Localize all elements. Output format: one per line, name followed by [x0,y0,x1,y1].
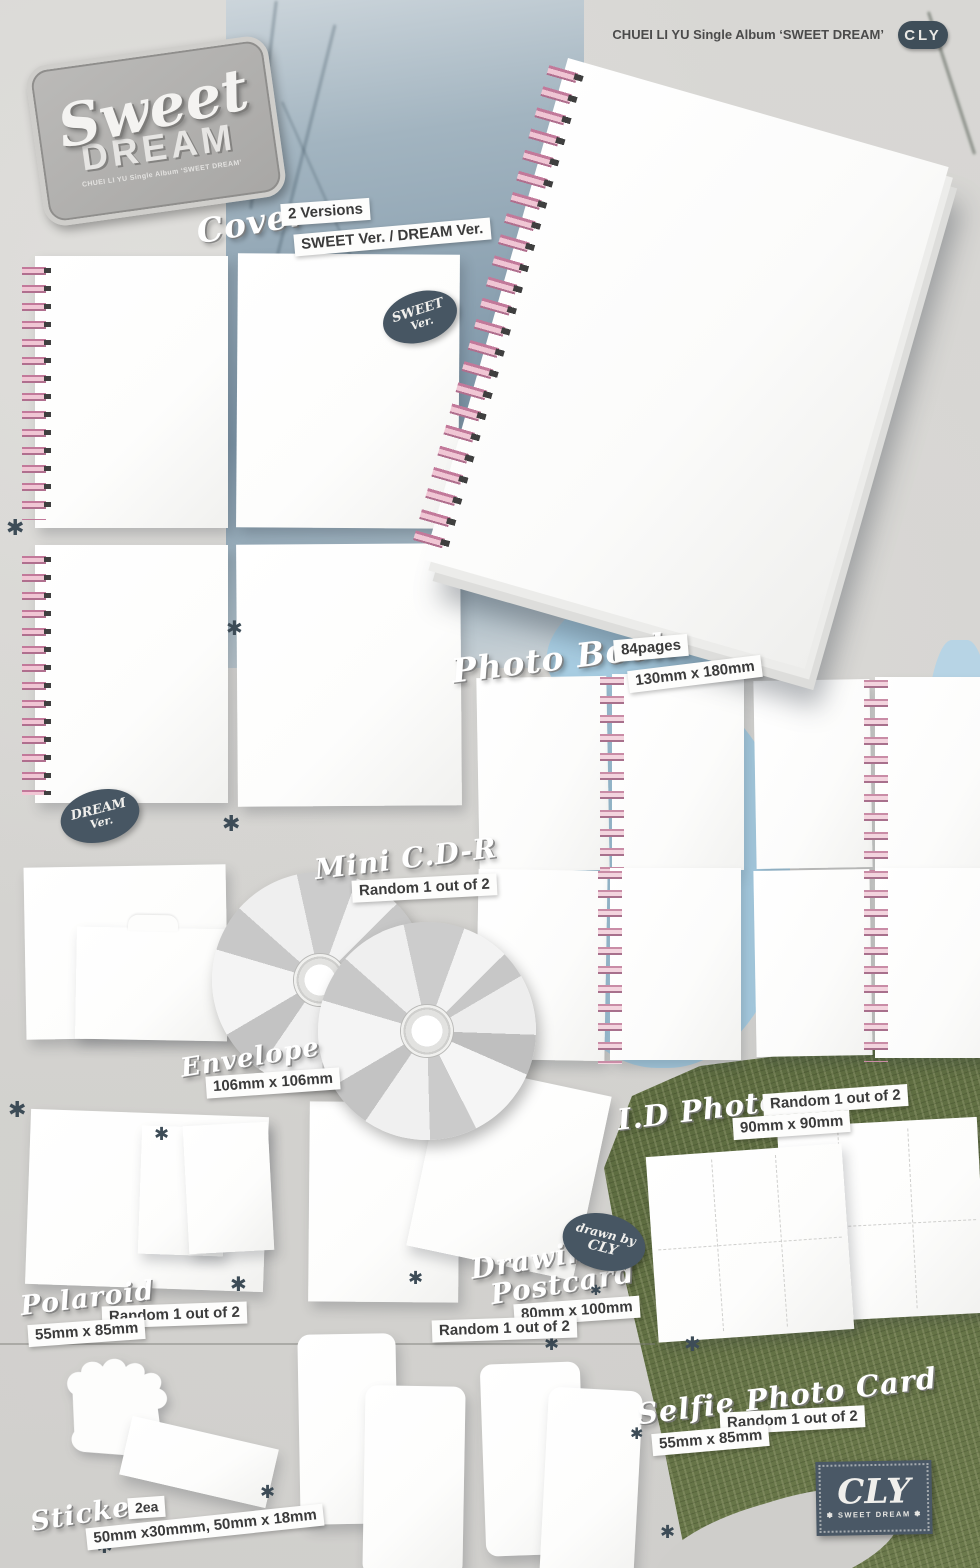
spiral-holes [44,264,51,520]
sweet-dream-logo-sticker: Sweet DREAM CHUEI LI YU Single Album ‘SW… [24,34,288,228]
asterisk-decoration: ✱ [408,1270,423,1288]
spiral-coil [864,868,888,1062]
header-album-title: CHUEI LI YU Single Album ‘SWEET DREAM’ [592,27,884,42]
asterisk-decoration: ✱ [684,1334,701,1354]
selfie-photo-card-mockup [362,1385,465,1568]
spiral-coil [22,264,46,520]
photo-book-spread [478,672,768,876]
photo-book-page [753,869,872,1057]
spiral-coil [864,677,888,873]
cut-line [658,1237,842,1251]
asterisk-decoration: ✱ [154,1126,169,1144]
sticker-qty-label: 2ea [127,1496,166,1520]
id-photo-sheet [646,1143,854,1342]
polaroid-mockup [183,1122,275,1254]
cover-mockup-sweet-front [35,256,228,528]
photo-book-page [875,677,980,869]
cly-stamp-logo: CLY ✽ SWEET DREAM ✽ [815,1460,932,1536]
cover-mockup-dream-back [236,543,462,807]
spiral-coil [22,553,46,795]
spiral-holes [44,553,51,795]
envelope-front-mockup [75,927,229,1042]
stamp-subtitle: ✽ SWEET DREAM ✽ [826,1509,922,1520]
badge-dream-line2: Ver. [89,814,114,831]
spiral-coil [598,868,622,1064]
photo-book-page [875,868,980,1058]
envelope-flap-tab [128,915,178,932]
cut-line [907,1128,917,1308]
photo-book-spread [755,866,980,1064]
photo-book-spread [755,675,980,875]
spiral-coil [600,674,624,874]
asterisk-decoration: ✱ [222,814,240,836]
mini-cd-disc [318,922,536,1140]
asterisk-decoration: ✱ [6,518,24,540]
asterisk-decoration: ✱ [590,1284,602,1298]
album-contents-poster: CHUEI LI YU Single Album ‘SWEET DREAM’ C… [0,0,980,1568]
asterisk-decoration: ✱ [260,1484,275,1502]
asterisk-decoration: ✱ [660,1524,675,1542]
asterisk-decoration: ✱ [8,1100,26,1122]
cover-mockup-dream-front [35,545,228,803]
asterisk-decoration: ✱ [226,618,243,638]
photo-book-page [753,679,872,869]
brand-badge-cly: CLY [898,21,948,49]
stamp-brand: CLY [837,1477,911,1509]
photo-book-page [612,674,744,870]
selfie-photo-card-mockup [539,1387,643,1568]
photo-book-page [610,868,741,1060]
asterisk-decoration: ✱ [230,1274,247,1294]
